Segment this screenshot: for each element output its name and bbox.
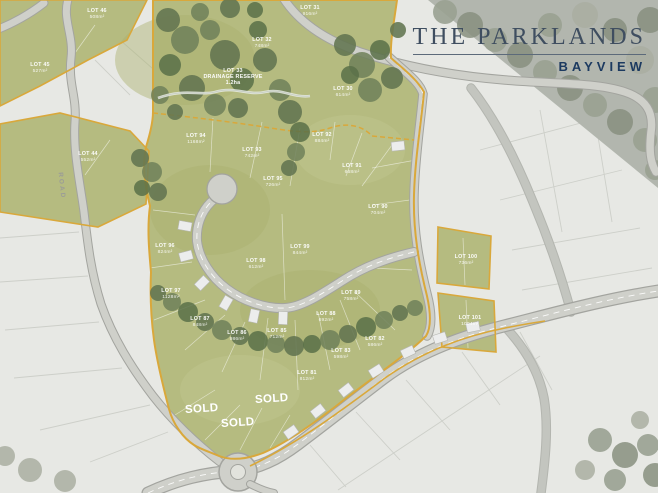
sold-label: SOLD xyxy=(185,402,219,416)
sold-label: SOLD xyxy=(255,392,289,406)
estate-title: THE PARKLANDS xyxy=(413,24,646,55)
estate-subtitle: BAYVIEW xyxy=(413,59,646,74)
masterplan-page: LOT 46508m²LOT 45527m²LOT 44552m²LOT 327… xyxy=(0,0,658,493)
sold-label: SOLD xyxy=(221,416,255,430)
brand-block: THE PARKLANDS BAYVIEW xyxy=(413,24,646,74)
cul-de-sac-head xyxy=(207,174,237,204)
